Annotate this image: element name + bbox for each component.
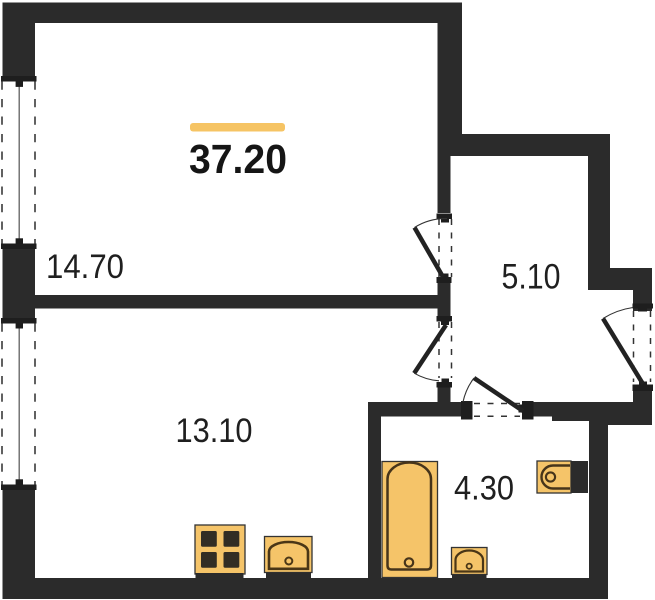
svg-text:14.70: 14.70 xyxy=(46,248,124,286)
svg-text:4.30: 4.30 xyxy=(454,469,514,507)
svg-text:37.20: 37.20 xyxy=(189,136,287,182)
svg-text:13.10: 13.10 xyxy=(176,412,253,450)
svg-text:5.10: 5.10 xyxy=(502,258,561,297)
